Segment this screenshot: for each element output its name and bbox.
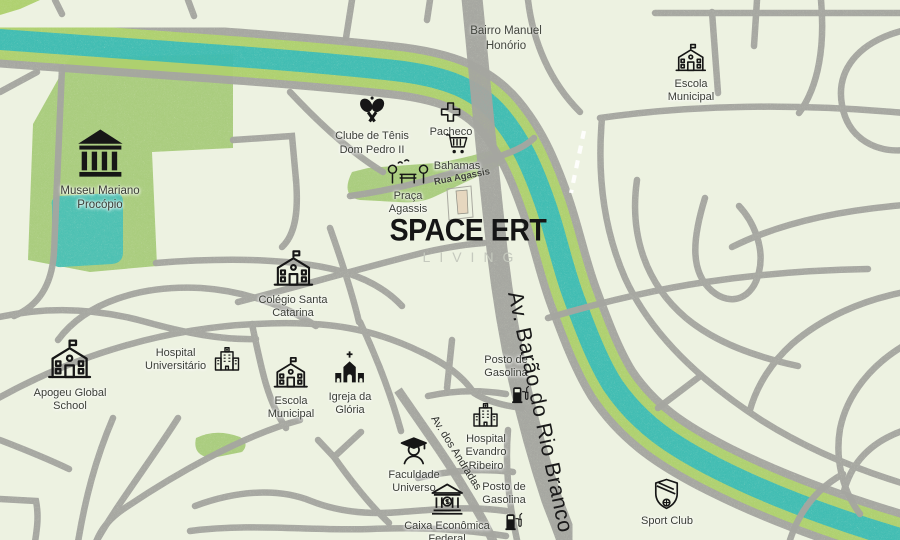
map-canvas: Museu Mariano Procópio Escola Municipal …: [0, 0, 900, 540]
poi-label: Apogeu Global School: [34, 387, 107, 414]
poi-bahamas: Bahamas: [434, 131, 480, 173]
development-logo: SPACE ERT LIVING: [386, 216, 551, 265]
museum-icon: [72, 126, 128, 182]
school-icon: [674, 42, 708, 76]
poi-label: Hospital Universitário: [145, 347, 206, 374]
school-icon: [271, 248, 315, 292]
district-label: Bairro Manuel Honório: [470, 24, 542, 54]
poi-sport-club: Sport Club: [641, 477, 693, 528]
poi-hospital-evandro-ribeiro: Hospital Evandro Ribeiro: [466, 401, 507, 473]
street-path: [447, 340, 452, 388]
street-path: [55, 0, 62, 14]
hospital-icon: [471, 401, 501, 431]
street-path: [188, 0, 194, 16]
poi-colegio-santa-catarina: Colégio Santa Catarina: [258, 248, 327, 321]
poi-escola-municipal-norte: Escola Municipal: [668, 42, 714, 105]
poi-escola-municipal-centro: Escola Municipal: [268, 355, 314, 422]
gas-pump-icon: [502, 510, 524, 532]
poi-label: Museu Mariano Procópio: [60, 184, 139, 212]
graduate-icon: [397, 432, 432, 467]
church-icon: [330, 349, 370, 389]
street-path: [0, 499, 38, 540]
street-path: [750, 292, 900, 410]
street-path: [528, 0, 580, 112]
street-path: [427, 0, 430, 20]
street-path: [658, 377, 699, 408]
health-cross-icon: [439, 100, 463, 124]
poi-label: Colégio Santa Catarina: [258, 294, 327, 321]
street-path: [346, 0, 352, 38]
poi-label: Sport Club: [641, 515, 693, 528]
street-path: [282, 180, 297, 247]
bank-icon: [428, 480, 466, 518]
poi-label: Clube de Tênis Dom Pedro II: [335, 130, 409, 157]
road-markings: [571, 131, 584, 193]
poi-label: Posto de Gasolina: [482, 481, 525, 508]
street-path: [0, 72, 37, 92]
poi-igreja-da-gloria: Igreja da Glória: [329, 349, 372, 418]
street-path: [233, 136, 296, 180]
poi-hospital-universitario: Hospital Universitário: [145, 345, 242, 375]
hospital-icon: [212, 345, 242, 375]
school-icon: [272, 355, 310, 393]
street-path: [0, 440, 69, 469]
park-trees-bench-icon: [386, 157, 430, 188]
poi-label: Escola Municipal: [268, 395, 314, 422]
poi-apogeu-global-school: Apogeu Global School: [34, 337, 107, 414]
map-geography: [0, 0, 900, 540]
street-path: [841, 30, 900, 150]
poi-posto-gasolina-sul: Posto de Gasolina: [482, 479, 525, 532]
poi-label: Escola Municipal: [668, 78, 714, 105]
poi-clube-de-tenis: Clube de Tênis Dom Pedro II: [335, 95, 409, 157]
poi-museu-mariano-procopio: Museu Mariano Procópio: [60, 126, 139, 212]
logo-subtitle: LIVING: [386, 249, 551, 265]
street-path: [799, 0, 822, 113]
site-building: [456, 190, 468, 214]
street-path: [600, 107, 900, 118]
street-path: [754, 0, 757, 46]
shopping-cart-icon: [443, 131, 470, 158]
logo-title: SPACE ERT: [390, 215, 547, 246]
club-crest-icon: [650, 477, 683, 513]
street-path: [318, 432, 361, 457]
poi-praca-agassis: Praça Agassis: [386, 157, 430, 217]
poi-label: Caixa Econômica Federal: [404, 520, 490, 540]
tennis-rackets-icon: [354, 95, 390, 128]
poi-label: Igreja da Glória: [329, 391, 372, 418]
school-icon: [46, 337, 94, 385]
